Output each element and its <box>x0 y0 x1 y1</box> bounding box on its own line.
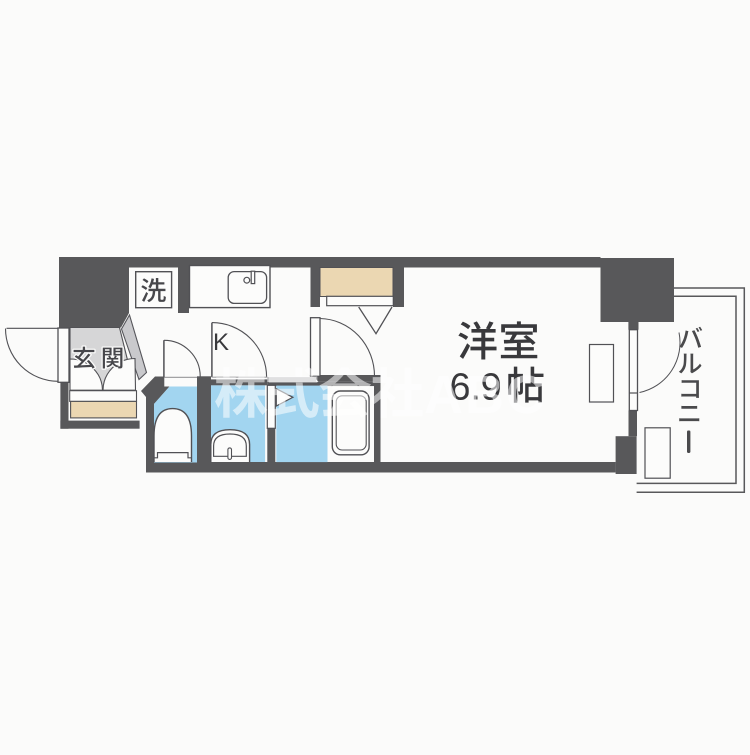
svg-text:ABC: ABC <box>424 365 547 425</box>
svg-text:K: K <box>213 329 229 356</box>
